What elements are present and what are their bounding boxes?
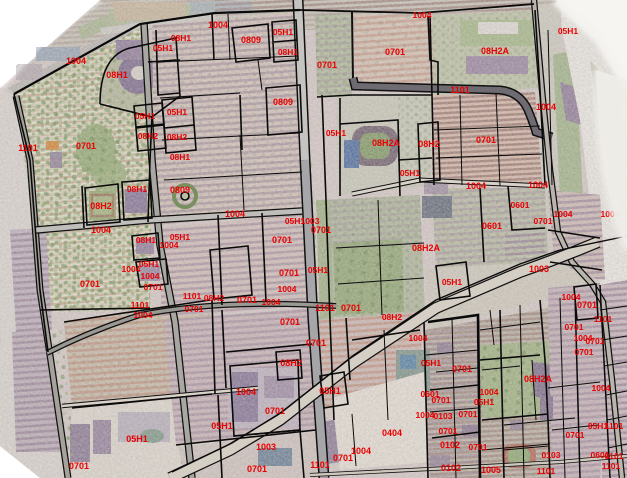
svg-text:08H1: 08H1 — [106, 70, 128, 80]
svg-text:0701: 0701 — [317, 60, 337, 70]
svg-text:08H2: 08H2 — [138, 131, 159, 141]
svg-text:1004: 1004 — [208, 20, 228, 30]
svg-text:0701: 0701 — [279, 268, 299, 278]
svg-text:05H1: 05H1 — [308, 265, 329, 275]
svg-text:08H1: 08H1 — [136, 235, 157, 245]
svg-text:1003: 1003 — [529, 264, 549, 274]
svg-text:0701: 0701 — [237, 295, 257, 305]
svg-text:05H1: 05H1 — [126, 434, 148, 444]
svg-text:08H1: 08H1 — [278, 47, 299, 57]
svg-text:0701: 0701 — [76, 141, 96, 151]
svg-text:1004: 1004 — [416, 410, 435, 420]
svg-text:1004: 1004 — [134, 310, 153, 320]
svg-text:1004: 1004 — [413, 10, 432, 20]
svg-text:1101: 1101 — [18, 143, 38, 153]
svg-text:0701: 0701 — [565, 322, 584, 332]
svg-text:0701: 0701 — [144, 282, 163, 292]
svg-text:1101: 1101 — [605, 421, 624, 431]
svg-text:1101: 1101 — [537, 466, 556, 476]
svg-text:1101: 1101 — [594, 314, 613, 324]
svg-text:0701: 0701 — [469, 442, 488, 452]
svg-text:0601: 0601 — [482, 221, 502, 231]
svg-text:1004: 1004 — [351, 446, 371, 456]
svg-text:0701: 0701 — [385, 47, 405, 57]
svg-text:0701: 0701 — [311, 225, 331, 235]
svg-text:0701: 0701 — [341, 303, 361, 313]
svg-text:1004: 1004 — [536, 102, 556, 112]
svg-text:0701: 0701 — [185, 304, 204, 314]
svg-text:1101: 1101 — [602, 461, 621, 471]
svg-text:1101: 1101 — [450, 85, 470, 95]
svg-text:05H1: 05H1 — [167, 107, 188, 117]
svg-text:0601: 0601 — [511, 200, 530, 210]
svg-text:1004: 1004 — [528, 180, 548, 190]
svg-text:05H1: 05H1 — [558, 26, 579, 36]
svg-text:1004: 1004 — [466, 181, 486, 191]
svg-text:0701: 0701 — [280, 317, 300, 327]
svg-text:0701: 0701 — [534, 216, 553, 226]
svg-text:08H1: 08H1 — [170, 152, 191, 162]
svg-text:1003: 1003 — [256, 442, 276, 452]
svg-text:0701: 0701 — [247, 464, 267, 474]
svg-text:1101: 1101 — [315, 303, 335, 313]
svg-text:0809: 0809 — [170, 185, 190, 195]
svg-text:0701: 0701 — [452, 364, 472, 374]
svg-text:1004: 1004 — [66, 56, 86, 66]
svg-text:0701: 0701 — [439, 426, 458, 436]
svg-text:1004: 1004 — [141, 271, 160, 281]
svg-text:08H1: 08H1 — [171, 33, 192, 43]
svg-text:05H1: 05H1 — [326, 128, 347, 138]
svg-text:1004: 1004 — [480, 387, 499, 397]
svg-text:1004: 1004 — [160, 240, 179, 250]
svg-text:05H1: 05H1 — [319, 386, 341, 396]
svg-text:1101: 1101 — [310, 460, 330, 470]
svg-text:1004: 1004 — [278, 284, 297, 294]
svg-text:0701: 0701 — [69, 461, 89, 471]
svg-text:0701: 0701 — [265, 406, 285, 416]
svg-text:08H2: 08H2 — [280, 358, 302, 368]
svg-text:0102: 0102 — [441, 463, 461, 473]
svg-text:0701: 0701 — [306, 338, 326, 348]
svg-text:0701: 0701 — [459, 409, 478, 419]
svg-text:1004: 1004 — [236, 387, 256, 397]
svg-text:0809: 0809 — [273, 97, 293, 107]
svg-text:1004: 1004 — [225, 209, 245, 219]
svg-text:1101: 1101 — [131, 300, 150, 310]
svg-text:0103: 0103 — [542, 450, 561, 460]
svg-text:1101: 1101 — [183, 291, 202, 301]
svg-text:1004: 1004 — [554, 209, 573, 219]
svg-text:0103: 0103 — [434, 411, 453, 421]
svg-text:05H1: 05H1 — [273, 27, 294, 37]
svg-text:08H2A: 08H2A — [524, 374, 553, 384]
svg-text:0701: 0701 — [476, 135, 496, 145]
svg-text:0701: 0701 — [586, 336, 605, 346]
svg-text:08H2: 08H2 — [418, 139, 440, 149]
svg-text:1004: 1004 — [91, 225, 111, 235]
svg-text:1004: 1004 — [262, 297, 281, 307]
svg-text:1004: 1004 — [409, 333, 428, 343]
svg-text:08H2: 08H2 — [90, 201, 112, 211]
svg-text:0701: 0701 — [80, 279, 100, 289]
svg-text:05H1: 05H1 — [474, 397, 495, 407]
svg-text:0102: 0102 — [440, 440, 460, 450]
svg-text:0404: 0404 — [382, 428, 402, 438]
svg-text:05H1: 05H1 — [211, 421, 233, 431]
svg-text:05H1: 05H1 — [153, 43, 174, 53]
svg-text:05H1: 05H1 — [442, 277, 463, 287]
svg-text:05H1: 05H1 — [400, 168, 421, 178]
svg-text:08H1: 08H1 — [127, 184, 148, 194]
svg-text:05H1: 05H1 — [135, 111, 156, 121]
svg-text:1004: 1004 — [592, 383, 611, 393]
svg-text:0701: 0701 — [272, 235, 292, 245]
svg-text:0701: 0701 — [577, 300, 597, 310]
svg-text:0701: 0701 — [575, 347, 594, 357]
svg-text:0809: 0809 — [241, 35, 261, 45]
svg-text:0701: 0701 — [432, 395, 451, 405]
svg-text:08H2A: 08H2A — [372, 138, 401, 148]
svg-text:0701: 0701 — [566, 430, 585, 440]
svg-text:1004: 1004 — [122, 264, 141, 274]
svg-text:08H2: 08H2 — [167, 132, 188, 142]
svg-text:08H2A: 08H2A — [481, 46, 510, 56]
svg-text:0101: 0101 — [605, 451, 624, 461]
svg-text:08H2: 08H2 — [382, 312, 403, 322]
svg-text:05H1: 05H1 — [421, 358, 442, 368]
svg-text:08H2: 08H2 — [204, 293, 225, 303]
svg-text:08H2A: 08H2A — [412, 243, 441, 253]
svg-text:05H1: 05H1 — [139, 259, 160, 269]
svg-text:1005: 1005 — [481, 465, 501, 475]
